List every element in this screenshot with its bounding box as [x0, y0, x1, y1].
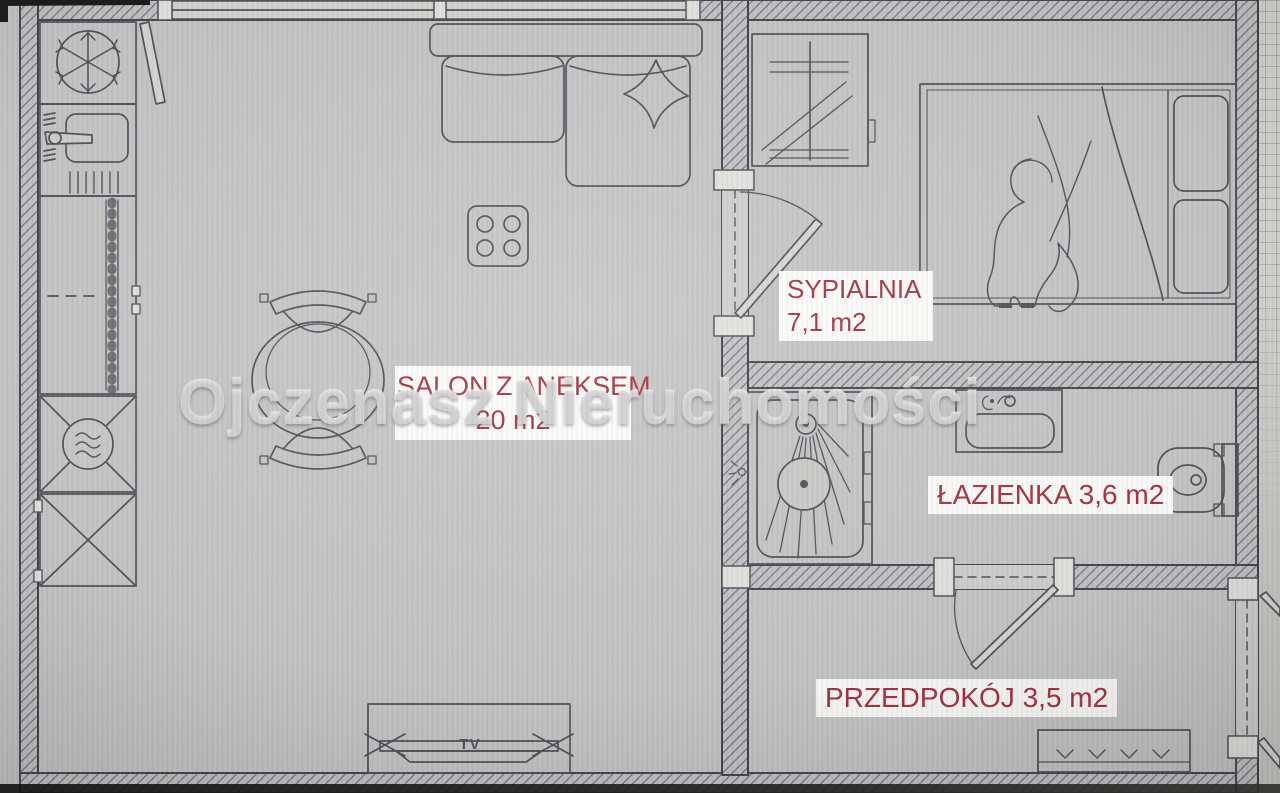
salon-window — [158, 0, 700, 20]
room-label-sypialnia: SYPIALNIA 7,1 m2 — [779, 271, 933, 341]
kitchen-fridge — [40, 22, 136, 104]
room-label-lazienka: ŁAZIENKA 3,6 m2 — [928, 476, 1173, 514]
tv-label: TV — [452, 736, 488, 753]
pillow — [1174, 200, 1228, 293]
balcony-door-leaf — [140, 22, 165, 104]
chair-top — [260, 291, 376, 332]
room-name: SYPIALNIA — [787, 273, 925, 306]
kitchen-counter — [40, 196, 140, 394]
room-name: ŁAZIENKA — [937, 479, 1071, 510]
floor-plan-photo: SALON Z ANEKSEM 20 m2 SYPIALNIA 7,1 m2 Ł… — [0, 0, 1280, 793]
kitchen-sink — [40, 104, 136, 196]
entrance-door — [722, 566, 1280, 768]
room-label-przedpokoj: PRZEDPOKÓJ 3,5 m2 — [816, 679, 1117, 717]
door-leaf — [1258, 738, 1280, 768]
room-area: 3,5 m2 — [1023, 682, 1109, 713]
washing-machine — [40, 396, 136, 492]
faucet — [45, 132, 92, 144]
person-figure — [988, 159, 1079, 311]
room-area: 3,6 m2 — [1079, 479, 1165, 510]
door-leaf — [971, 585, 1058, 669]
blanket — [1102, 87, 1163, 300]
agency-watermark: Ojczenasz Nieruchomości — [178, 367, 982, 439]
wall-left — [20, 0, 38, 775]
room-name: PRZEDPOKÓJ — [825, 682, 1015, 713]
pillow — [1174, 96, 1228, 191]
bathroom-door — [934, 558, 1074, 669]
pillow — [624, 60, 688, 128]
hob — [468, 206, 528, 266]
double-bed — [920, 84, 1236, 311]
kitchen-cabinet — [34, 494, 136, 586]
room-area: 7,1 m2 — [787, 306, 925, 339]
hanger-icon — [1057, 750, 1169, 758]
wall-bottom — [20, 773, 1258, 793]
hall-wardrobe — [1038, 730, 1190, 772]
corner-sofa — [430, 24, 702, 186]
bedroom-wardrobe — [752, 34, 875, 166]
